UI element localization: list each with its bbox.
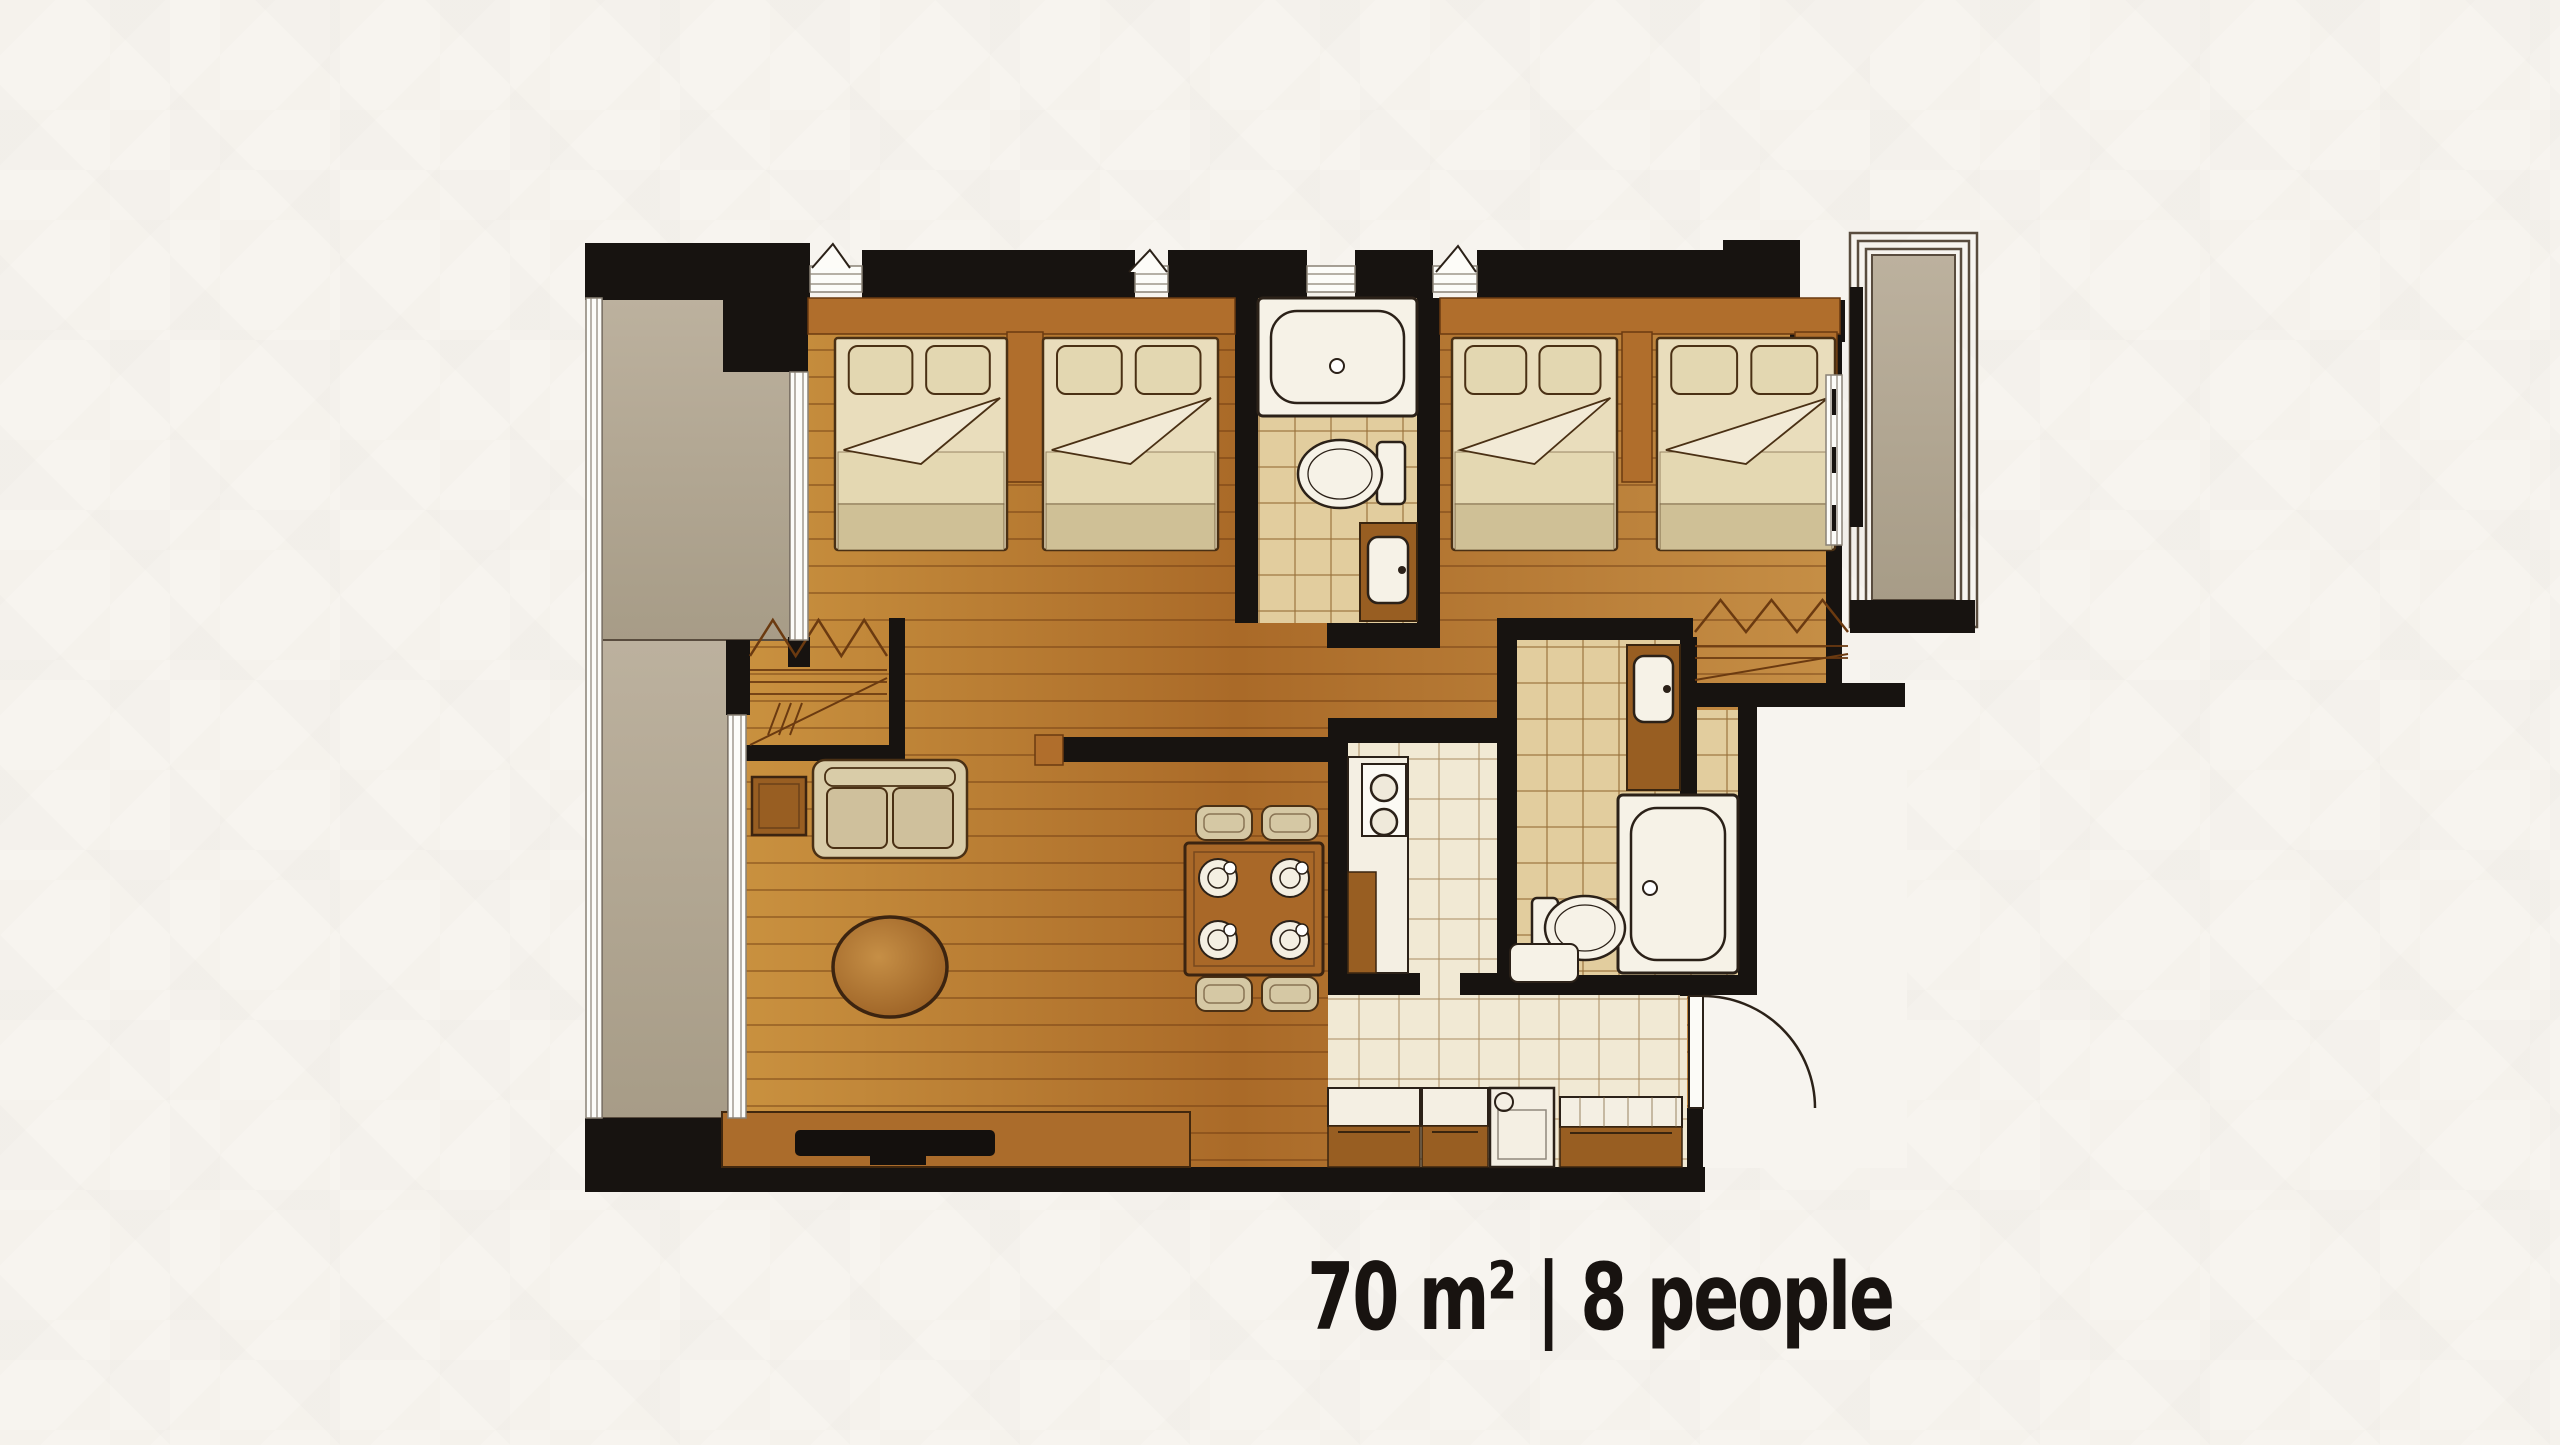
window <box>1307 266 1355 292</box>
tv <box>795 1130 995 1156</box>
bed <box>835 338 1007 550</box>
window-glass <box>586 298 602 1118</box>
sofa-cushion <box>893 788 953 848</box>
wall <box>1497 640 1517 995</box>
wall <box>1687 1108 1703 1168</box>
nightstand-block <box>1622 332 1652 482</box>
counter-unit <box>1422 1088 1488 1167</box>
wall <box>1850 600 1975 633</box>
sink-vanity <box>1627 645 1680 790</box>
exterior-area <box>1757 707 1907 995</box>
bed <box>1043 338 1218 550</box>
stove-burner-icon <box>1371 775 1397 801</box>
bed-foot-blanket <box>838 504 1004 550</box>
nightstand-block <box>1007 332 1043 482</box>
wall <box>1355 250 1433 298</box>
wall <box>585 243 810 300</box>
toilet-bowl <box>1298 440 1382 508</box>
wall <box>1328 743 1348 995</box>
counter-unit <box>1560 1097 1682 1167</box>
bed-pillow <box>1057 346 1122 394</box>
bed-pillow <box>1671 346 1737 394</box>
wall <box>1328 973 1420 995</box>
side-table <box>752 777 806 835</box>
counter-top <box>1560 1097 1682 1127</box>
floor-plan-page: 70 m² | 8 people <box>0 0 2560 1445</box>
window-glass <box>728 715 746 1118</box>
stove-burner-icon <box>1371 809 1397 835</box>
wall <box>726 640 750 715</box>
dishwasher-body <box>1490 1088 1554 1167</box>
oval-rug <box>833 917 947 1017</box>
toilet <box>1298 440 1405 508</box>
wall <box>862 250 1135 298</box>
wall <box>1060 737 1328 762</box>
caption: 70 m² | 8 people <box>1257 1232 1943 1362</box>
sofa <box>813 760 967 858</box>
window <box>1826 375 1842 545</box>
counter-unit <box>1328 1088 1420 1167</box>
window-curtain-mark-icon <box>812 244 850 268</box>
wall <box>1850 287 1863 527</box>
kitchen-cabinet <box>1348 872 1376 973</box>
wall <box>1460 973 1497 995</box>
bathtub-body <box>1618 795 1738 973</box>
wall <box>1168 250 1307 298</box>
window <box>790 372 808 640</box>
place-setting-cup <box>1224 924 1236 936</box>
wall <box>585 1167 1705 1192</box>
nightstand-block <box>1035 735 1063 765</box>
wall <box>889 618 905 759</box>
window-glass <box>1307 266 1355 292</box>
bed-pillow <box>849 346 913 394</box>
caption-text: 70 m² | 8 people <box>1307 1243 1893 1351</box>
place-setting-cup <box>1224 862 1236 874</box>
wall <box>744 745 905 761</box>
sink-faucet-icon <box>1398 566 1406 574</box>
counter-top <box>1328 1088 1420 1126</box>
washing-machine <box>1510 944 1578 982</box>
bed-pillow <box>1136 346 1201 394</box>
wall <box>1477 250 1723 298</box>
place-setting-cup <box>1296 924 1308 936</box>
bed-foot-blanket <box>1455 504 1614 550</box>
wall <box>1680 637 1697 795</box>
bed-pillow <box>926 346 990 394</box>
counter-top <box>1422 1088 1488 1126</box>
floor-plan-image <box>0 0 2560 1445</box>
bed <box>1657 338 1835 550</box>
bathtub-drain <box>1643 881 1657 895</box>
window-glass <box>810 266 862 292</box>
window <box>810 266 862 292</box>
wall <box>723 300 808 372</box>
window-dash <box>1832 389 1836 415</box>
wall <box>1235 298 1258 623</box>
exterior-area <box>1703 995 1907 1168</box>
window <box>728 715 746 1118</box>
wall <box>1680 975 1703 996</box>
bed-headboard-shelf <box>1440 298 1840 334</box>
dishwasher <box>1490 1088 1554 1167</box>
place-setting-cup <box>1296 862 1308 874</box>
wall <box>1327 623 1440 648</box>
bed-pillow <box>1465 346 1526 394</box>
kitchen-unit <box>1348 757 1408 973</box>
bathtub <box>1258 298 1417 416</box>
bathtub <box>1618 795 1738 973</box>
wall <box>1497 618 1693 640</box>
sink-vanity <box>1360 523 1417 621</box>
balcony-concrete-floor <box>1872 255 1955 600</box>
window-curtain-mark-icon <box>1436 246 1476 272</box>
window-dash <box>1832 505 1836 531</box>
kitchen-tile-floor <box>1420 973 1460 995</box>
bed-foot-blanket <box>1046 504 1215 550</box>
bathtub-drain <box>1330 359 1344 373</box>
window-dash <box>1832 447 1836 473</box>
sink-faucet-icon <box>1663 685 1671 693</box>
entry-door-leaf <box>1689 996 1703 1108</box>
bed-headboard-shelf <box>808 298 1235 334</box>
wall <box>1417 298 1440 648</box>
window <box>586 298 602 1118</box>
wall <box>1328 718 1517 743</box>
wall <box>1693 683 1905 707</box>
balcony-concrete-floor <box>602 640 728 1118</box>
sofa-cushion <box>827 788 887 848</box>
wall <box>1738 707 1757 995</box>
bed-pillow <box>1751 346 1817 394</box>
bed-foot-blanket <box>1660 504 1832 550</box>
bed-pillow <box>1539 346 1600 394</box>
bed <box>1452 338 1617 550</box>
window-glass <box>790 372 808 640</box>
tv-stand <box>870 1156 926 1165</box>
